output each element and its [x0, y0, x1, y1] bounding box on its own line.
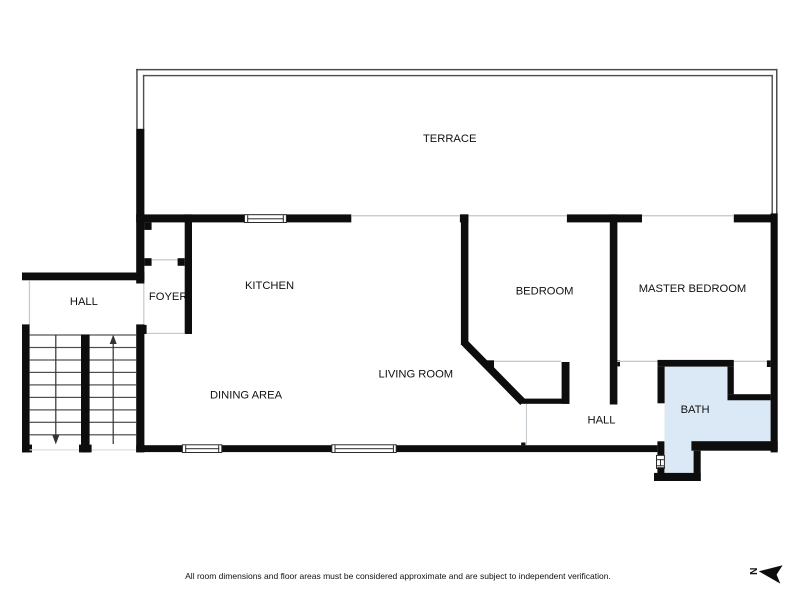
svg-text:LIVING ROOM: LIVING ROOM: [379, 368, 454, 380]
svg-text:BATH: BATH: [681, 404, 710, 416]
svg-text:MASTER BEDROOM: MASTER BEDROOM: [639, 283, 747, 295]
svg-text:HALL: HALL: [588, 414, 616, 426]
svg-text:DINING AREA: DINING AREA: [210, 389, 283, 401]
svg-text:KITCHEN: KITCHEN: [245, 280, 294, 292]
svg-text:HALL: HALL: [70, 296, 98, 308]
svg-text:TERRACE: TERRACE: [423, 133, 476, 145]
svg-text:BEDROOM: BEDROOM: [516, 285, 574, 297]
svg-text:N: N: [749, 568, 760, 575]
svg-text:All room dimensions and floor: All room dimensions and floor areas must…: [185, 571, 611, 581]
svg-text:FOYER: FOYER: [149, 291, 188, 303]
